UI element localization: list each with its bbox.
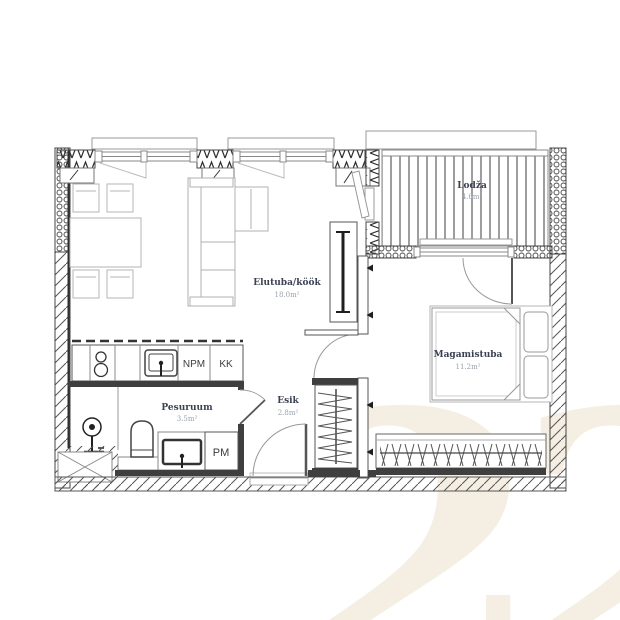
hallway-name: Esik: [277, 396, 299, 406]
hall-wardrobe: [312, 378, 358, 475]
washroom: PM Pesuruum 3.5m²: [58, 385, 265, 488]
loggia: Lodža 4.6m²: [366, 148, 566, 258]
window: [95, 151, 197, 162]
door-swing: [463, 258, 512, 304]
living-name: Elutuba/köök: [253, 277, 321, 288]
kitchen: NPM KK: [68, 341, 244, 387]
loggia-right-wall: [550, 148, 566, 254]
washroom-name: Pesuruum: [161, 403, 213, 413]
hallway-area: 2.8m²: [278, 409, 299, 417]
door-swing: [240, 390, 265, 424]
left-wall: [55, 148, 70, 488]
window: [414, 247, 514, 257]
bedroom-name: Magamistuba: [434, 350, 503, 360]
floorplan-drawing: Lodža 4.6m²: [0, 0, 620, 620]
sink-icon: [145, 350, 177, 376]
pillow: [524, 312, 548, 352]
window: [233, 151, 333, 162]
balcony-slabs: [92, 131, 536, 149]
hallway: Esik 2.8m²: [250, 378, 358, 485]
floorplan-canvas: 22: [0, 0, 620, 620]
dining-set: [70, 184, 141, 298]
dishwasher-label: NPM: [183, 359, 205, 370]
loggia-name: Lodža: [457, 180, 487, 191]
window-leaf: [100, 163, 284, 178]
pillow: [524, 356, 548, 398]
washing-machine: PM: [205, 432, 238, 470]
dining-table: [70, 218, 141, 267]
fridge-label: KK: [219, 359, 233, 370]
front-door: [250, 424, 308, 485]
washroom-area: 3.5m²: [177, 415, 198, 423]
bedroom-area: 11.2m²: [455, 363, 480, 371]
living-area: 18.0m²: [274, 291, 299, 299]
washbasin-icon: [158, 432, 205, 470]
door-swing: [314, 334, 358, 378]
washing-machine-label: PM: [213, 447, 230, 459]
bedroom-wardrobe: [376, 434, 546, 475]
tv-unit: [330, 222, 357, 322]
loggia-area: 4.6m²: [462, 193, 483, 201]
